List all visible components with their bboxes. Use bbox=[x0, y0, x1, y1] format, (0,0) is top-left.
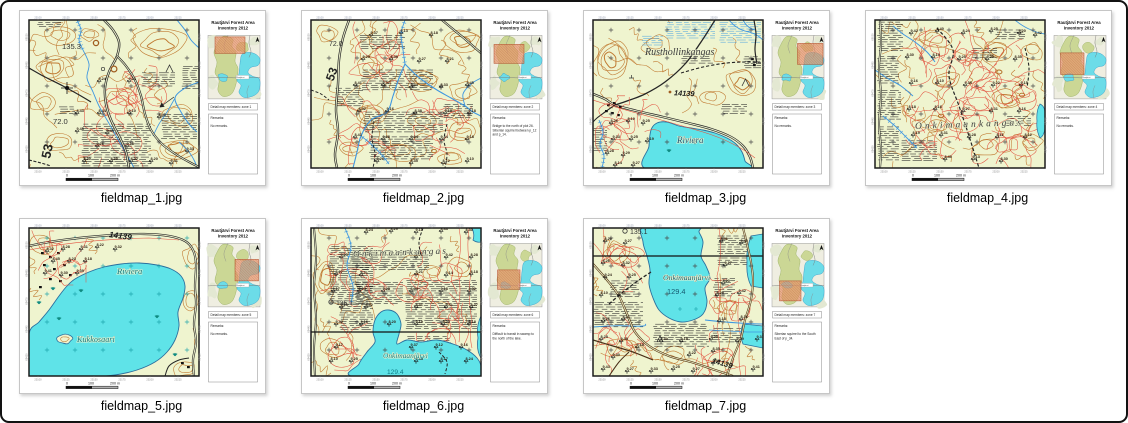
svg-text:68420: 68420 bbox=[480, 353, 484, 361]
svg-text:100: 100 bbox=[88, 174, 94, 178]
svg-text:68445: 68445 bbox=[1044, 117, 1048, 125]
svg-text:9.30: 9.30 bbox=[61, 271, 68, 275]
svg-text:135.1: 135.1 bbox=[630, 229, 648, 236]
svg-text:25175: 25175 bbox=[400, 224, 408, 228]
svg-text:25225: 25225 bbox=[456, 378, 464, 382]
svg-text:25100: 25100 bbox=[34, 16, 42, 20]
svg-text:Rautjärvi: Rautjärvi bbox=[1082, 76, 1091, 79]
svg-text:9.41: 9.41 bbox=[619, 291, 626, 295]
svg-text:25200: 25200 bbox=[428, 170, 436, 174]
svg-text:68470: 68470 bbox=[871, 89, 875, 97]
svg-text:68520: 68520 bbox=[25, 241, 29, 249]
svg-text:8.40: 8.40 bbox=[937, 27, 944, 31]
svg-text:9.18: 9.18 bbox=[637, 343, 644, 347]
svg-text:9.29: 9.29 bbox=[623, 151, 630, 155]
svg-text:Rautjärvi Forest Area: Rautjärvi Forest Area bbox=[775, 20, 819, 25]
svg-text:9.38: 9.38 bbox=[621, 337, 628, 341]
svg-text:9.18: 9.18 bbox=[467, 135, 474, 139]
svg-text:8.12: 8.12 bbox=[1025, 133, 1032, 137]
svg-text:Rautjärvi Forest Area: Rautjärvi Forest Area bbox=[775, 228, 819, 233]
svg-text:25100: 25100 bbox=[598, 378, 606, 382]
svg-text:25100: 25100 bbox=[34, 224, 42, 228]
svg-text:25200: 25200 bbox=[146, 224, 154, 228]
svg-text:8.30: 8.30 bbox=[907, 53, 914, 57]
svg-text:25150: 25150 bbox=[372, 224, 380, 228]
svg-text:9.18: 9.18 bbox=[445, 109, 452, 113]
svg-text:9.16: 9.16 bbox=[461, 343, 468, 347]
svg-text:68445: 68445 bbox=[198, 325, 202, 333]
svg-text:9.28: 9.28 bbox=[383, 287, 390, 291]
svg-text:0: 0 bbox=[630, 382, 632, 386]
svg-text:68420: 68420 bbox=[198, 145, 202, 153]
svg-text:68470: 68470 bbox=[480, 89, 484, 97]
svg-text:9.27: 9.27 bbox=[693, 367, 700, 371]
svg-text:9.20: 9.20 bbox=[711, 335, 718, 339]
svg-text:25200: 25200 bbox=[992, 170, 1000, 174]
svg-text:72.0: 72.0 bbox=[53, 117, 68, 126]
svg-text:9.42: 9.42 bbox=[739, 289, 746, 293]
svg-text:68495: 68495 bbox=[25, 61, 29, 69]
svg-text:9.41: 9.41 bbox=[446, 303, 453, 307]
svg-text:8.43: 8.43 bbox=[77, 109, 84, 113]
svg-text:9.18: 9.18 bbox=[85, 257, 92, 261]
svg-text:Onkimaanjärvi: Onkimaanjärvi bbox=[663, 273, 710, 282]
svg-text:25150: 25150 bbox=[90, 16, 98, 20]
svg-text:Remarks:: Remarks: bbox=[211, 324, 225, 328]
svg-text:68470: 68470 bbox=[198, 89, 202, 97]
svg-text:8.32: 8.32 bbox=[366, 303, 373, 307]
svg-text:25175: 25175 bbox=[118, 16, 126, 20]
svg-text:68420: 68420 bbox=[480, 145, 484, 153]
svg-text:8.33: 8.33 bbox=[411, 287, 418, 291]
svg-text:Remarks:: Remarks: bbox=[493, 324, 507, 328]
svg-text:9.37: 9.37 bbox=[383, 81, 390, 85]
svg-text:Riviera: Riviera bbox=[116, 266, 142, 276]
svg-text:8.30: 8.30 bbox=[1001, 157, 1008, 161]
svg-text:8.26: 8.26 bbox=[377, 157, 384, 161]
svg-text:25125: 25125 bbox=[344, 224, 352, 228]
svg-text:25225: 25225 bbox=[738, 170, 746, 174]
svg-text:68445: 68445 bbox=[871, 117, 875, 125]
svg-text:68520: 68520 bbox=[762, 33, 766, 41]
svg-text:Bridge to the north of plot 26: Bridge to the north of plot 26. bbox=[493, 124, 534, 128]
svg-text:200 m: 200 m bbox=[956, 174, 966, 178]
svg-text:8.32: 8.32 bbox=[47, 247, 54, 251]
svg-text:8.28: 8.28 bbox=[63, 245, 70, 249]
svg-text:9.21: 9.21 bbox=[416, 270, 423, 274]
svg-text:129.4: 129.4 bbox=[387, 369, 404, 376]
svg-text:25125: 25125 bbox=[344, 16, 352, 20]
svg-text:25225: 25225 bbox=[1020, 16, 1028, 20]
svg-text:25200: 25200 bbox=[146, 16, 154, 20]
svg-text:9.33: 9.33 bbox=[651, 367, 658, 371]
svg-text:8.12: 8.12 bbox=[443, 159, 450, 163]
svg-text:8.18: 8.18 bbox=[469, 320, 476, 324]
svg-text:9.16: 9.16 bbox=[127, 142, 134, 146]
svg-text:25200: 25200 bbox=[428, 378, 436, 382]
svg-text:25225: 25225 bbox=[738, 16, 746, 20]
svg-text:8.20: 8.20 bbox=[723, 279, 730, 283]
svg-text:9.33: 9.33 bbox=[613, 135, 620, 139]
svg-text:8.41: 8.41 bbox=[721, 237, 728, 241]
svg-text:8.26: 8.26 bbox=[611, 119, 618, 123]
svg-text:9.25: 9.25 bbox=[959, 55, 966, 59]
svg-text:72.0: 72.0 bbox=[329, 41, 343, 48]
svg-text:68445: 68445 bbox=[762, 325, 766, 333]
svg-text:9.19: 9.19 bbox=[681, 337, 688, 341]
svg-text:25150: 25150 bbox=[654, 16, 662, 20]
svg-text:100: 100 bbox=[652, 174, 658, 178]
svg-text:9.25: 9.25 bbox=[351, 357, 358, 361]
svg-text:25100: 25100 bbox=[880, 16, 888, 20]
svg-text:and p_14.: and p_14. bbox=[493, 133, 507, 137]
svg-text:25100: 25100 bbox=[316, 378, 324, 382]
svg-text:No remarks.: No remarks. bbox=[211, 332, 228, 336]
svg-text:135.1: 135.1 bbox=[336, 300, 353, 307]
svg-text:9.15: 9.15 bbox=[1021, 81, 1028, 85]
svg-text:9.25: 9.25 bbox=[631, 135, 638, 139]
svg-text:9.20: 9.20 bbox=[1019, 29, 1026, 33]
svg-text:53: 53 bbox=[38, 143, 56, 160]
svg-text:25225: 25225 bbox=[456, 16, 464, 20]
svg-text:25200: 25200 bbox=[146, 378, 154, 382]
svg-text:Detail map members: zone 2: Detail map members: zone 2 bbox=[493, 105, 534, 109]
svg-text:8.19: 8.19 bbox=[628, 117, 635, 121]
svg-text:25100: 25100 bbox=[34, 378, 42, 382]
svg-text:68470: 68470 bbox=[480, 297, 484, 305]
svg-text:200 m: 200 m bbox=[674, 174, 684, 178]
svg-text:68520: 68520 bbox=[480, 33, 484, 41]
svg-text:68470: 68470 bbox=[1044, 89, 1048, 97]
svg-text:Remarks:: Remarks: bbox=[493, 116, 507, 120]
svg-text:68470: 68470 bbox=[762, 297, 766, 305]
svg-text:68495: 68495 bbox=[480, 61, 484, 69]
svg-text:Siberian squirrel between p_12: Siberian squirrel between p_12 bbox=[493, 128, 537, 132]
svg-text:68445: 68445 bbox=[307, 325, 311, 333]
svg-text:Detail map members: zone 7: Detail map members: zone 7 bbox=[775, 313, 816, 317]
svg-text:25225: 25225 bbox=[174, 16, 182, 20]
svg-text:8.25: 8.25 bbox=[991, 27, 998, 31]
svg-text:68520: 68520 bbox=[480, 241, 484, 249]
svg-text:25125: 25125 bbox=[62, 16, 70, 20]
svg-text:8.23: 8.23 bbox=[69, 257, 76, 261]
svg-text:9.31: 9.31 bbox=[81, 245, 88, 249]
svg-text:9.27: 9.27 bbox=[633, 161, 640, 165]
svg-text:25225: 25225 bbox=[174, 224, 182, 228]
svg-text:No remarks.: No remarks. bbox=[211, 124, 228, 128]
svg-text:25100: 25100 bbox=[880, 170, 888, 174]
svg-text:9.27: 9.27 bbox=[725, 261, 732, 265]
svg-text:8.16: 8.16 bbox=[1019, 107, 1026, 111]
svg-text:8.28: 8.28 bbox=[969, 133, 976, 137]
svg-text:68495: 68495 bbox=[871, 61, 875, 69]
svg-text:9.26: 9.26 bbox=[603, 317, 610, 321]
svg-text:25225: 25225 bbox=[1020, 170, 1028, 174]
svg-text:8.40: 8.40 bbox=[945, 155, 952, 159]
svg-text:Rautjärvi: Rautjärvi bbox=[236, 76, 245, 79]
svg-text:25175: 25175 bbox=[682, 224, 690, 228]
svg-text:68420: 68420 bbox=[25, 353, 29, 361]
svg-text:Detail map members: zone 6: Detail map members: zone 6 bbox=[493, 313, 534, 317]
svg-text:9.27: 9.27 bbox=[963, 107, 970, 111]
svg-text:68495: 68495 bbox=[198, 269, 202, 277]
svg-text:25100: 25100 bbox=[34, 170, 42, 174]
svg-text:8.20: 8.20 bbox=[443, 320, 450, 324]
svg-text:8.11: 8.11 bbox=[997, 133, 1004, 137]
svg-text:100: 100 bbox=[88, 382, 94, 386]
svg-text:9.29: 9.29 bbox=[363, 55, 370, 59]
svg-text:25225: 25225 bbox=[738, 224, 746, 228]
svg-text:68520: 68520 bbox=[589, 241, 593, 249]
svg-text:8.33: 8.33 bbox=[441, 83, 448, 87]
svg-text:8.18: 8.18 bbox=[909, 105, 916, 109]
svg-text:100: 100 bbox=[934, 174, 940, 178]
svg-text:8.16: 8.16 bbox=[935, 105, 942, 109]
svg-text:68520: 68520 bbox=[1044, 33, 1048, 41]
svg-text:25175: 25175 bbox=[118, 224, 126, 228]
svg-text:68470: 68470 bbox=[307, 297, 311, 305]
svg-text:0: 0 bbox=[66, 174, 68, 178]
svg-text:8.32: 8.32 bbox=[469, 287, 476, 291]
svg-text:9.16: 9.16 bbox=[911, 79, 918, 83]
svg-text:14139: 14139 bbox=[674, 88, 696, 98]
svg-text:Inventory 2012: Inventory 2012 bbox=[782, 26, 813, 31]
svg-text:Rautjärvi Forest Area: Rautjärvi Forest Area bbox=[211, 228, 255, 233]
svg-text:68520: 68520 bbox=[589, 33, 593, 41]
svg-text:25200: 25200 bbox=[992, 16, 1000, 20]
svg-text:9.16: 9.16 bbox=[361, 320, 368, 324]
svg-text:68495: 68495 bbox=[762, 269, 766, 277]
svg-text:8.22: 8.22 bbox=[131, 157, 138, 161]
svg-text:68520: 68520 bbox=[198, 241, 202, 249]
svg-text:8.18: 8.18 bbox=[719, 317, 726, 321]
svg-text:9.18: 9.18 bbox=[469, 109, 476, 113]
svg-text:25200: 25200 bbox=[710, 170, 718, 174]
svg-text:68420: 68420 bbox=[307, 353, 311, 361]
svg-text:68520: 68520 bbox=[25, 33, 29, 41]
svg-text:68420: 68420 bbox=[871, 145, 875, 153]
svg-text:8.18: 8.18 bbox=[471, 270, 478, 274]
svg-text:68520: 68520 bbox=[871, 33, 875, 41]
svg-text:the north of the lake.: the north of the lake. bbox=[493, 336, 522, 340]
svg-text:Inventory 2012: Inventory 2012 bbox=[218, 234, 249, 239]
svg-text:8.30: 8.30 bbox=[466, 228, 473, 232]
svg-text:200 m: 200 m bbox=[110, 382, 120, 386]
svg-text:68495: 68495 bbox=[480, 269, 484, 277]
svg-text:9.25: 9.25 bbox=[643, 119, 650, 123]
svg-text:8.31: 8.31 bbox=[416, 303, 423, 307]
svg-text:8.10: 8.10 bbox=[933, 53, 940, 57]
svg-text:Rautjärvi Forest Area: Rautjärvi Forest Area bbox=[493, 20, 537, 25]
svg-text:25225: 25225 bbox=[174, 170, 182, 174]
svg-text:8.22: 8.22 bbox=[689, 351, 696, 355]
svg-text:9.10: 9.10 bbox=[467, 157, 474, 161]
svg-text:68470: 68470 bbox=[307, 89, 311, 97]
svg-text:Remarks:: Remarks: bbox=[775, 116, 789, 120]
svg-text:9.23: 9.23 bbox=[359, 287, 366, 291]
svg-text:8.20: 8.20 bbox=[389, 320, 396, 324]
svg-text:9.42: 9.42 bbox=[911, 29, 918, 33]
svg-text:25175: 25175 bbox=[682, 16, 690, 20]
svg-text:25200: 25200 bbox=[710, 224, 718, 228]
svg-text:9.16: 9.16 bbox=[387, 107, 394, 111]
svg-text:Onkimaanjärvi: Onkimaanjärvi bbox=[383, 351, 428, 360]
svg-text:Remarks:: Remarks: bbox=[1057, 116, 1071, 120]
svg-text:8.11: 8.11 bbox=[623, 315, 630, 319]
svg-text:9.22: 9.22 bbox=[993, 81, 1000, 85]
svg-text:Rautjärvi: Rautjärvi bbox=[800, 76, 809, 79]
svg-text:68445: 68445 bbox=[307, 117, 311, 125]
svg-text:9.27: 9.27 bbox=[625, 239, 632, 243]
svg-text:8.35: 8.35 bbox=[1015, 55, 1022, 59]
svg-text:9.12: 9.12 bbox=[436, 343, 443, 347]
svg-text:Rautjärvi: Rautjärvi bbox=[236, 284, 245, 287]
svg-text:68445: 68445 bbox=[589, 325, 593, 333]
svg-text:8.42: 8.42 bbox=[1035, 31, 1042, 35]
svg-text:Remarks:: Remarks: bbox=[211, 116, 225, 120]
svg-text:25100: 25100 bbox=[598, 16, 606, 20]
svg-text:0: 0 bbox=[348, 382, 350, 386]
svg-text:0: 0 bbox=[348, 174, 350, 178]
svg-text:9.18: 9.18 bbox=[441, 287, 448, 291]
svg-text:9.25: 9.25 bbox=[629, 273, 636, 277]
svg-text:9.17: 9.17 bbox=[336, 343, 343, 347]
svg-text:9.11: 9.11 bbox=[416, 228, 423, 232]
svg-text:68445: 68445 bbox=[198, 117, 202, 125]
svg-text:25225: 25225 bbox=[456, 170, 464, 174]
svg-text:0: 0 bbox=[66, 382, 68, 386]
svg-text:8.45: 8.45 bbox=[159, 113, 166, 117]
svg-text:8.32: 8.32 bbox=[359, 107, 366, 111]
svg-text:8.38: 8.38 bbox=[415, 109, 422, 113]
svg-text:Difficult to transit in swamp: Difficult to transit in swamp to bbox=[493, 332, 535, 336]
svg-text:Detail map members: zone 4: Detail map members: zone 4 bbox=[1057, 105, 1098, 109]
svg-text:Detail map members: zone 1: Detail map members: zone 1 bbox=[211, 105, 252, 109]
svg-text:9.37: 9.37 bbox=[411, 343, 418, 347]
svg-text:8.20: 8.20 bbox=[151, 157, 158, 161]
svg-text:68520: 68520 bbox=[762, 241, 766, 249]
svg-text:9.19: 9.19 bbox=[647, 137, 654, 141]
svg-text:25100: 25100 bbox=[598, 224, 606, 228]
svg-text:8.20: 8.20 bbox=[605, 237, 612, 241]
svg-text:Rautjärvi: Rautjärvi bbox=[518, 76, 527, 79]
svg-text:25175: 25175 bbox=[964, 16, 972, 20]
svg-text:68420: 68420 bbox=[198, 353, 202, 361]
svg-text:9.18: 9.18 bbox=[383, 135, 390, 139]
svg-text:8.10: 8.10 bbox=[331, 357, 338, 361]
svg-text:9.39: 9.39 bbox=[77, 269, 84, 273]
svg-text:25125: 25125 bbox=[626, 16, 634, 20]
svg-text:8.32: 8.32 bbox=[623, 261, 630, 265]
svg-text:8.28: 8.28 bbox=[471, 253, 478, 257]
svg-text:Remarks:: Remarks: bbox=[775, 324, 789, 328]
svg-text:68470: 68470 bbox=[589, 89, 593, 97]
svg-text:8.22: 8.22 bbox=[97, 243, 104, 247]
svg-text:East of p_34.: East of p_34. bbox=[775, 336, 794, 340]
svg-text:8.45: 8.45 bbox=[107, 129, 114, 133]
svg-text:8.35: 8.35 bbox=[411, 159, 418, 163]
svg-text:25100: 25100 bbox=[316, 170, 324, 174]
svg-text:200 m: 200 m bbox=[674, 382, 684, 386]
svg-text:68495: 68495 bbox=[589, 61, 593, 69]
svg-text:Rautjärvi: Rautjärvi bbox=[800, 284, 809, 287]
svg-text:9.45: 9.45 bbox=[77, 127, 84, 131]
svg-text:8.10: 8.10 bbox=[937, 79, 944, 83]
svg-text:Riviera: Riviera bbox=[676, 135, 704, 145]
svg-text:9.29: 9.29 bbox=[737, 337, 744, 341]
svg-text:9.27: 9.27 bbox=[627, 367, 634, 371]
svg-text:68520: 68520 bbox=[198, 33, 202, 41]
svg-text:9.20: 9.20 bbox=[717, 291, 724, 295]
svg-text:200 m: 200 m bbox=[110, 174, 120, 178]
svg-text:Inventory 2012: Inventory 2012 bbox=[500, 26, 531, 31]
svg-text:68470: 68470 bbox=[25, 297, 29, 305]
svg-text:68445: 68445 bbox=[480, 117, 484, 125]
svg-text:135.3: 135.3 bbox=[62, 42, 81, 51]
svg-text:68445: 68445 bbox=[762, 117, 766, 125]
svg-text:9.35: 9.35 bbox=[965, 81, 972, 85]
svg-text:8.30: 8.30 bbox=[84, 157, 91, 161]
svg-text:68420: 68420 bbox=[589, 353, 593, 361]
svg-text:68520: 68520 bbox=[307, 241, 311, 249]
svg-text:68495: 68495 bbox=[762, 61, 766, 69]
svg-text:8.27: 8.27 bbox=[336, 270, 343, 274]
svg-text:68445: 68445 bbox=[25, 117, 29, 125]
svg-text:Rautjärvi Forest Area: Rautjärvi Forest Area bbox=[211, 20, 255, 25]
svg-text:8.21: 8.21 bbox=[447, 57, 454, 61]
svg-text:Detail map members: zone 3: Detail map members: zone 3 bbox=[775, 105, 816, 109]
svg-text:9.41: 9.41 bbox=[753, 365, 760, 369]
svg-text:68445: 68445 bbox=[480, 325, 484, 333]
svg-text:9.33: 9.33 bbox=[187, 147, 194, 151]
svg-text:9.45: 9.45 bbox=[741, 239, 748, 243]
svg-text:100: 100 bbox=[370, 174, 376, 178]
svg-text:9.20: 9.20 bbox=[987, 55, 994, 59]
svg-text:8.41: 8.41 bbox=[355, 133, 362, 137]
svg-text:Rusthollinkangas: Rusthollinkangas bbox=[644, 47, 715, 58]
svg-text:200 m: 200 m bbox=[392, 382, 402, 386]
svg-text:68495: 68495 bbox=[198, 61, 202, 69]
svg-text:25150: 25150 bbox=[936, 16, 944, 20]
svg-text:Kukkosaari: Kukkosaari bbox=[76, 335, 115, 344]
svg-text:8.27: 8.27 bbox=[471, 303, 478, 307]
svg-text:8.26: 8.26 bbox=[603, 259, 610, 263]
svg-text:25100: 25100 bbox=[598, 170, 606, 174]
svg-text:25125: 25125 bbox=[908, 16, 916, 20]
svg-text:9.26: 9.26 bbox=[97, 142, 104, 146]
svg-text:68445: 68445 bbox=[589, 117, 593, 125]
svg-text:9.27: 9.27 bbox=[419, 57, 426, 61]
svg-text:68420: 68420 bbox=[589, 145, 593, 153]
svg-text:25200: 25200 bbox=[428, 224, 436, 228]
svg-text:25225: 25225 bbox=[738, 378, 746, 382]
svg-text:100: 100 bbox=[370, 382, 376, 386]
svg-text:68445: 68445 bbox=[25, 325, 29, 333]
svg-text:9.10: 9.10 bbox=[129, 109, 136, 113]
svg-text:8.38: 8.38 bbox=[391, 55, 398, 59]
svg-text:Inventory 2012: Inventory 2012 bbox=[500, 234, 531, 239]
svg-text:8.21: 8.21 bbox=[361, 271, 368, 275]
svg-text:8.35: 8.35 bbox=[713, 347, 720, 351]
svg-text:Rautjärvi Forest Area: Rautjärvi Forest Area bbox=[1057, 20, 1101, 25]
svg-text:25150: 25150 bbox=[654, 224, 662, 228]
svg-text:8.16: 8.16 bbox=[741, 315, 748, 319]
svg-text:68470: 68470 bbox=[589, 297, 593, 305]
svg-text:25225: 25225 bbox=[174, 378, 182, 382]
svg-text:Inventory 2012: Inventory 2012 bbox=[782, 234, 813, 239]
svg-text:68420: 68420 bbox=[307, 145, 311, 153]
svg-text:25100: 25100 bbox=[316, 16, 324, 20]
